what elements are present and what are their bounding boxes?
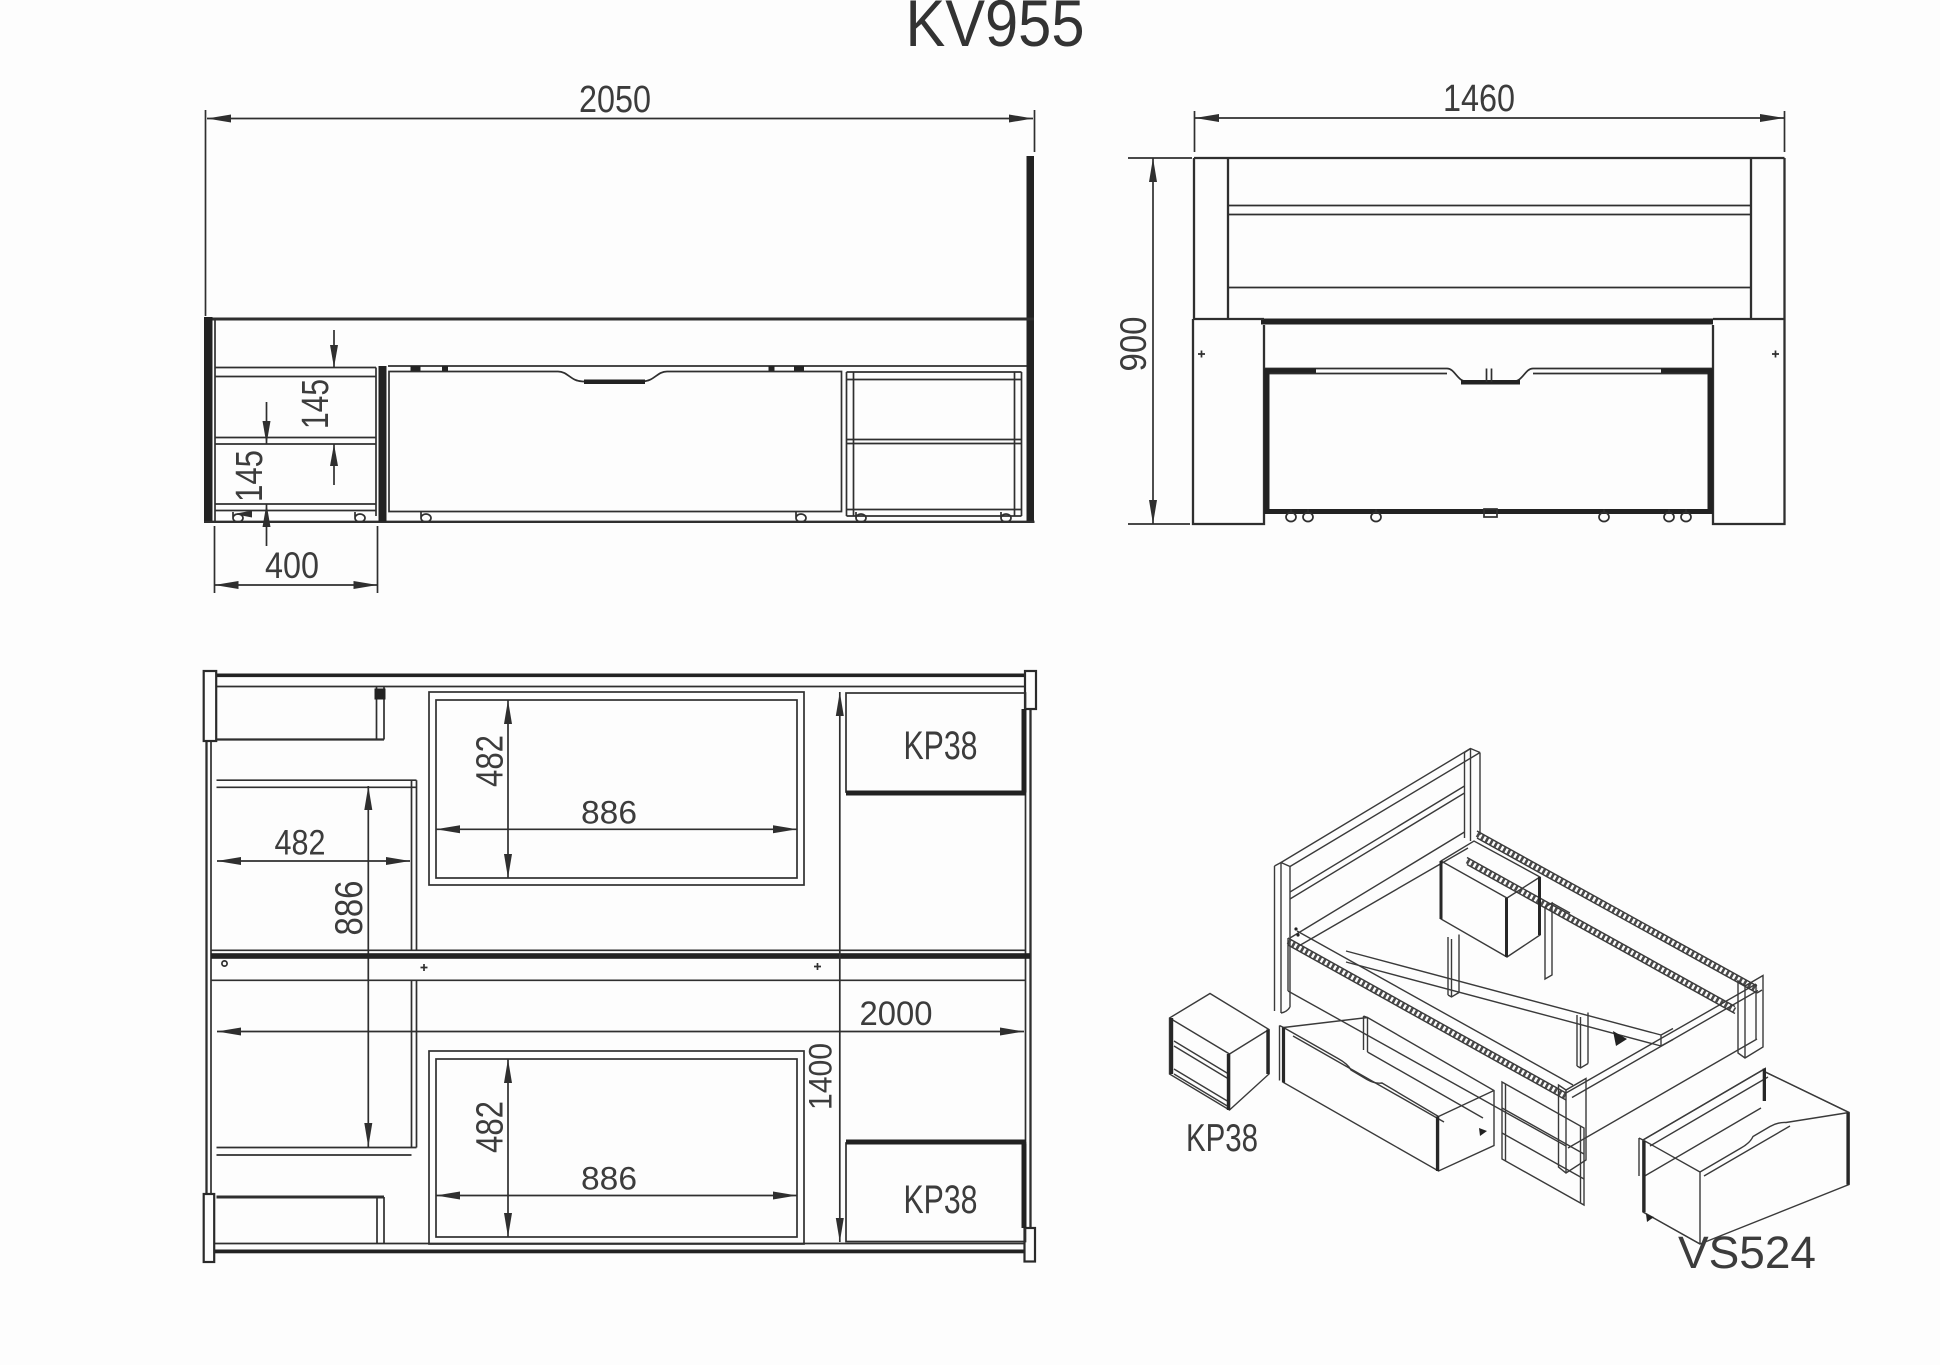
svg-text:145: 145 <box>229 450 271 502</box>
svg-text:KP38: KP38 <box>904 1178 978 1222</box>
svg-text:2000: 2000 <box>860 995 933 1033</box>
svg-text:1400: 1400 <box>803 1043 839 1110</box>
svg-text:886: 886 <box>328 881 371 936</box>
svg-text:VS524: VS524 <box>1678 1227 1816 1278</box>
svg-text:1460: 1460 <box>1443 78 1515 120</box>
svg-text:482: 482 <box>275 824 326 863</box>
svg-text:900: 900 <box>1113 317 1154 372</box>
svg-text:KP38: KP38 <box>1186 1117 1258 1160</box>
svg-text:886: 886 <box>581 795 637 831</box>
svg-text:886: 886 <box>581 1161 637 1197</box>
svg-text:482: 482 <box>470 735 512 787</box>
svg-text:145: 145 <box>295 379 337 429</box>
svg-text:400: 400 <box>265 545 319 586</box>
svg-text:KP38: KP38 <box>904 724 978 768</box>
svg-text:KV955: KV955 <box>906 0 1085 60</box>
svg-text:482: 482 <box>470 1101 512 1153</box>
svg-text:2050: 2050 <box>579 79 651 121</box>
